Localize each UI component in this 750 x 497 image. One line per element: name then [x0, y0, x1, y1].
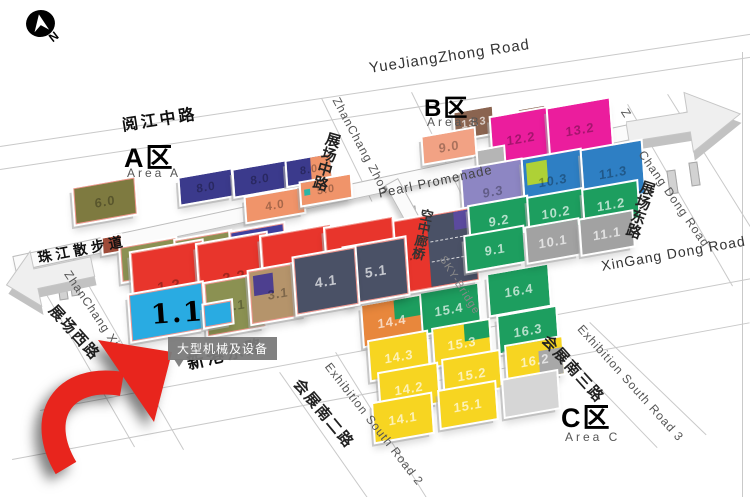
- hall-block-c1[interactable]: [503, 371, 559, 416]
- area-c-subtitle: Area C: [565, 430, 620, 444]
- hall-number-label: 8.0: [179, 169, 232, 204]
- hall-8.0[interactable]: 8.0: [179, 169, 232, 204]
- compass-needle-icon: [27, 11, 53, 36]
- highlight-arrow-icon: [14, 326, 184, 496]
- road-label-yuejiangzhong-zh: 阅江中路: [120, 100, 199, 136]
- tooltip-pointer-icon: [174, 359, 184, 367]
- exhibition-map: 6.08.08.08.04.05.06.17.18.11.22.23.24.25…: [0, 0, 750, 497]
- area-a-subtitle: Area A: [127, 166, 181, 180]
- hall-6.0[interactable]: 6.0: [73, 178, 137, 225]
- hall-16.4[interactable]: 16.4: [488, 265, 550, 316]
- hall-category-tooltip: 大型机械及设备: [168, 337, 277, 360]
- area-b-subtitle: Area B: [427, 115, 482, 129]
- tooltip-text: 大型机械及设备: [177, 342, 268, 356]
- hall-number-label: 10.1: [526, 219, 580, 262]
- hall-number-label: 16.4: [488, 265, 550, 316]
- hall-10.1[interactable]: 10.1: [526, 219, 580, 262]
- hall-number-label: 4.1: [295, 249, 358, 314]
- hall-4.1[interactable]: 4.1: [294, 248, 359, 315]
- hall-number-label: 6.0: [74, 179, 135, 224]
